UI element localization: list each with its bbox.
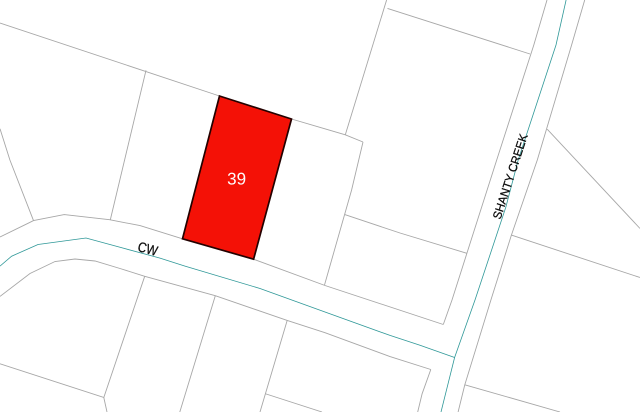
svg-text:39: 39 [227, 170, 246, 189]
